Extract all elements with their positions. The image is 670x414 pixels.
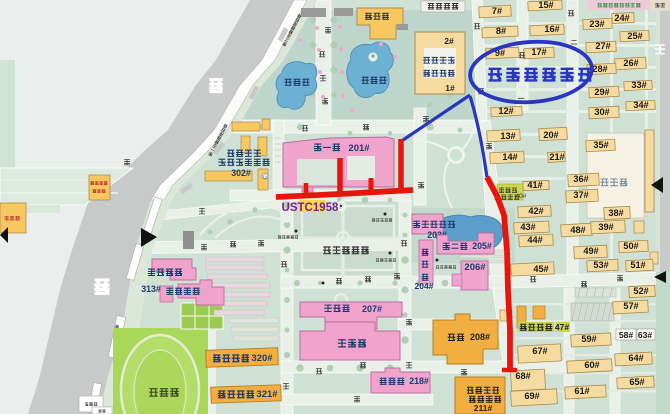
svg-text:38#: 38# — [608, 208, 623, 218]
svg-text:58#: 58# — [619, 330, 634, 340]
svg-text:G: G — [263, 175, 267, 181]
svg-text:36#: 36# — [573, 174, 588, 184]
svg-text:15#: 15# — [538, 0, 553, 10]
svg-text:17#: 17# — [531, 47, 546, 57]
svg-text:34#: 34# — [633, 100, 648, 110]
svg-text:42#: 42# — [528, 206, 543, 216]
svg-text:69#: 69# — [524, 391, 539, 401]
svg-text:67#: 67# — [532, 346, 547, 356]
svg-text:320#: 320# — [251, 353, 273, 364]
svg-text:60#: 60# — [584, 360, 599, 370]
svg-text:13#: 13# — [500, 131, 515, 141]
svg-text:28#: 28# — [592, 64, 607, 74]
svg-text:12#: 12# — [498, 106, 513, 116]
svg-text:59#: 59# — [581, 334, 596, 344]
svg-text:27#: 27# — [595, 41, 610, 51]
svg-text:1#: 1# — [445, 83, 455, 93]
svg-text:208#: 208# — [470, 332, 490, 342]
svg-text:40#: 40# — [516, 193, 527, 200]
svg-text:63#: 63# — [638, 330, 653, 340]
svg-text:61#: 61# — [574, 386, 589, 396]
svg-text:26#: 26# — [623, 58, 638, 68]
svg-text:41#: 41# — [527, 180, 542, 190]
svg-text:37#: 37# — [573, 190, 588, 200]
svg-text:211#: 211# — [474, 403, 493, 413]
svg-text:21#: 21# — [549, 152, 564, 162]
svg-text:53#: 53# — [593, 260, 608, 270]
svg-text:57#: 57# — [623, 301, 638, 311]
svg-text:24#: 24# — [614, 13, 629, 23]
svg-text:48#: 48# — [570, 225, 585, 235]
svg-text:7#: 7# — [492, 6, 502, 16]
svg-text:207#: 207# — [362, 304, 382, 314]
svg-text:2#: 2# — [444, 36, 454, 46]
svg-text:8#: 8# — [496, 26, 506, 36]
svg-text:218#: 218# — [409, 376, 429, 386]
svg-text:33#: 33# — [631, 80, 646, 90]
svg-text:25#: 25# — [627, 31, 642, 41]
svg-text:52#: 52# — [633, 286, 648, 296]
svg-text:14#: 14# — [502, 152, 517, 162]
svg-text:43#: 43# — [520, 222, 535, 232]
svg-text:USTC1958: USTC1958 — [282, 202, 339, 214]
svg-text:23#: 23# — [589, 19, 604, 29]
svg-text:16#: 16# — [544, 24, 559, 34]
svg-text:205#: 205# — [472, 241, 492, 251]
svg-text:302#: 302# — [231, 168, 251, 178]
svg-text:321#: 321# — [256, 389, 278, 400]
svg-text:30#: 30# — [594, 107, 609, 117]
svg-text:47#: 47# — [555, 322, 569, 332]
svg-text:29#: 29# — [594, 87, 609, 97]
svg-text:206#: 206# — [464, 262, 486, 273]
svg-text:68#: 68# — [515, 371, 530, 381]
svg-text:313#: 313# — [141, 284, 161, 294]
svg-text:201#: 201# — [348, 143, 370, 154]
svg-text:35#: 35# — [593, 140, 608, 150]
svg-text:51#: 51# — [630, 260, 645, 270]
svg-text:64#: 64# — [628, 353, 643, 363]
svg-text:20#: 20# — [543, 130, 558, 140]
svg-text:65#: 65# — [629, 377, 644, 387]
svg-text:44#: 44# — [527, 235, 542, 245]
svg-text:45#: 45# — [533, 264, 548, 274]
svg-text:39#: 39# — [598, 222, 613, 232]
svg-text:204#: 204# — [415, 281, 434, 291]
svg-text:50#: 50# — [623, 241, 638, 251]
svg-text:49#: 49# — [583, 246, 598, 256]
